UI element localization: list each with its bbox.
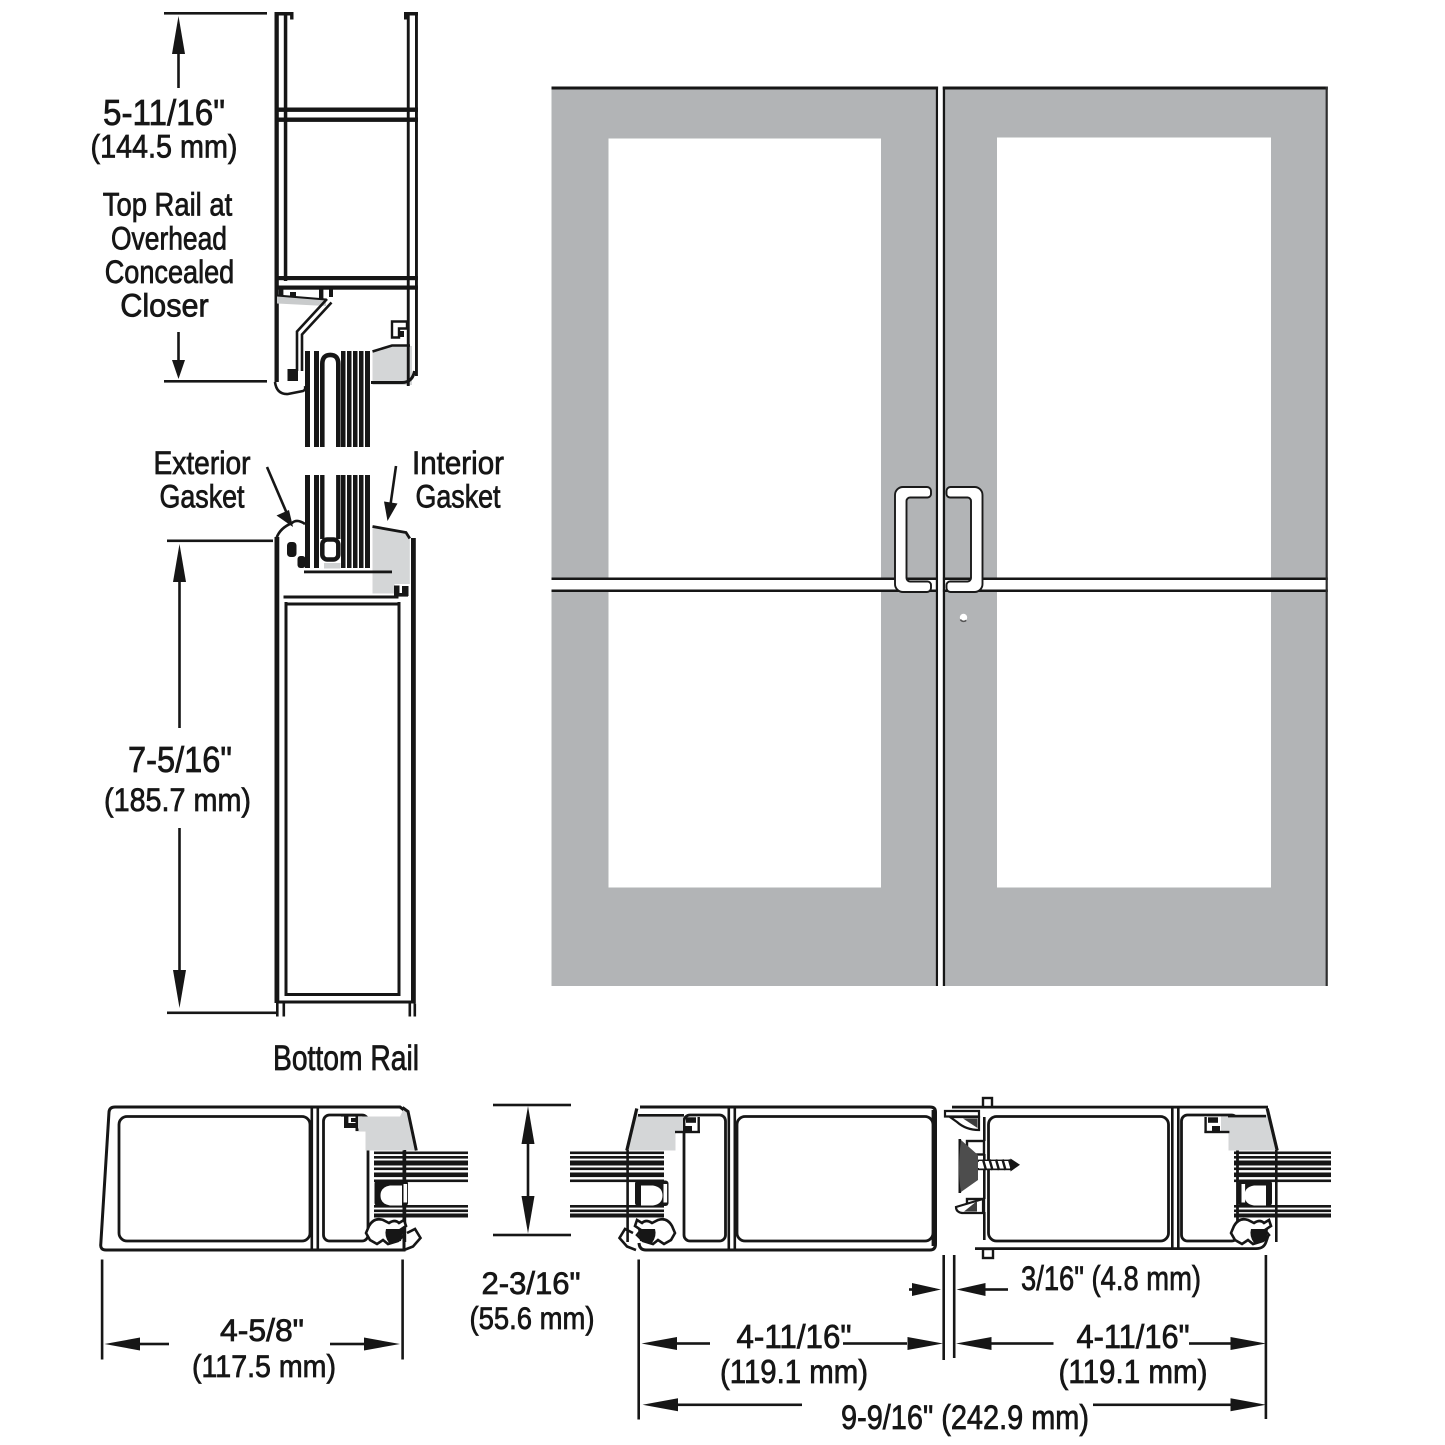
svg-text:Bottom Rail: Bottom Rail	[273, 1039, 419, 1078]
svg-text:(119.1 mm): (119.1 mm)	[720, 1353, 868, 1390]
svg-text:(55.6 mm): (55.6 mm)	[470, 1300, 595, 1336]
svg-text:Overhead: Overhead	[111, 221, 227, 257]
svg-text:(119.1 mm): (119.1 mm)	[1059, 1353, 1208, 1390]
svg-text:Concealed: Concealed	[105, 254, 235, 290]
svg-text:(144.5 mm): (144.5 mm)	[91, 129, 238, 165]
svg-text:(117.5 mm): (117.5 mm)	[192, 1348, 336, 1384]
svg-text:5-11/16": 5-11/16"	[103, 92, 225, 133]
svg-text:Gasket: Gasket	[416, 479, 501, 515]
svg-text:4-5/8": 4-5/8"	[220, 1312, 304, 1348]
svg-text:Top Rail at: Top Rail at	[103, 187, 233, 223]
svg-text:Closer: Closer	[120, 288, 209, 324]
svg-text:4-11/16": 4-11/16"	[737, 1318, 852, 1355]
svg-text:7-5/16": 7-5/16"	[128, 739, 232, 780]
svg-text:9-9/16" (242.9 mm): 9-9/16" (242.9 mm)	[841, 1399, 1089, 1437]
svg-text:Gasket: Gasket	[160, 479, 245, 515]
svg-text:3/16" (4.8 mm): 3/16" (4.8 mm)	[1021, 1260, 1201, 1298]
svg-text:2-3/16": 2-3/16"	[482, 1265, 581, 1301]
svg-text:Exterior: Exterior	[154, 445, 251, 481]
svg-text:(185.7 mm): (185.7 mm)	[104, 782, 251, 818]
svg-text:Interior: Interior	[412, 445, 504, 481]
svg-text:4-11/16": 4-11/16"	[1077, 1318, 1190, 1355]
